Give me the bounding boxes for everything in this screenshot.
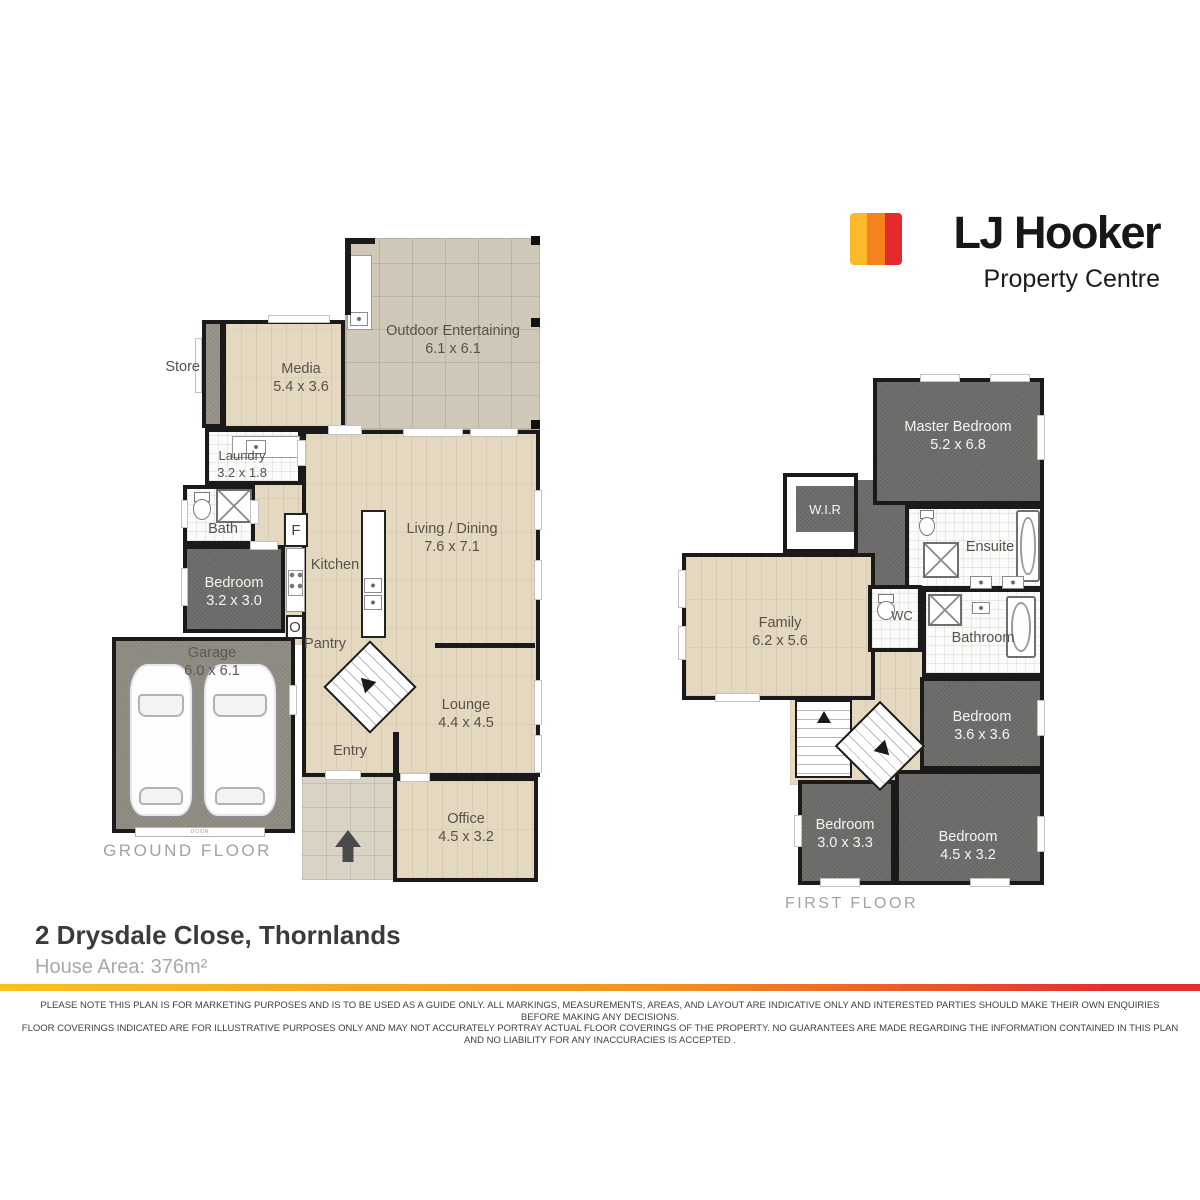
property-address: 2 Drysdale Close, Thornlands <box>35 920 401 951</box>
label-line: GROUND FLOOR <box>100 840 275 861</box>
sink-icon <box>1002 576 1024 589</box>
post-icon <box>531 236 540 245</box>
shower-icon <box>216 489 252 523</box>
first-floor-plan: Master Bedroom5.2 x 6.8W.I.REnsuiteFamil… <box>670 370 1050 915</box>
label-entry: Entry <box>300 742 400 760</box>
window <box>325 770 361 780</box>
window <box>289 685 297 715</box>
label-line: Media <box>201 360 401 378</box>
label-line: Bedroom <box>184 574 284 592</box>
label-bedroom-36: Bedroom3.6 x 3.6 <box>882 708 1082 744</box>
box-icon: F <box>284 513 308 547</box>
window <box>970 878 1010 887</box>
window <box>470 428 518 437</box>
window <box>268 315 330 323</box>
label-bedroom-45: Bedroom4.5 x 3.2 <box>868 828 1068 864</box>
label-line: 4.5 x 3.2 <box>366 828 566 846</box>
label-lounge: Lounge4.4 x 4.5 <box>366 696 566 732</box>
window <box>534 735 542 773</box>
window <box>400 773 430 782</box>
sink-icon <box>972 602 990 614</box>
window <box>990 374 1030 382</box>
floor-title: FIRST FLOOR <box>774 894 929 914</box>
label-office: Office4.5 x 3.2 <box>366 810 566 846</box>
label-line: 4.4 x 4.5 <box>366 714 566 732</box>
label-line: Garage <box>112 644 312 662</box>
toilet-icon <box>918 510 936 536</box>
label-line: 5.2 x 6.8 <box>858 436 1058 454</box>
label-line: Pantry <box>285 635 365 653</box>
label-bathroom: Bathroom <box>933 629 1033 647</box>
label-line: Entry <box>300 742 400 760</box>
lj-hooker-logo-mark <box>850 213 902 265</box>
sink-icon <box>364 595 382 610</box>
label-line: 7.6 x 7.1 <box>352 538 552 556</box>
label-line: 3.6 x 3.6 <box>882 726 1082 744</box>
label-wir: W.I.R <box>775 501 875 518</box>
label-line: Family <box>680 614 880 632</box>
label-line: Laundry <box>192 447 292 464</box>
label-kitchen: Kitchen <box>295 556 375 574</box>
label-line: Bathroom <box>933 629 1033 647</box>
label-garage: Garage6.0 x 6.1 <box>112 644 312 680</box>
toilet-icon <box>192 492 212 520</box>
car-icon <box>202 662 278 818</box>
sink-icon <box>970 576 992 589</box>
label-line: Office <box>366 810 566 828</box>
label-bedroom-ground: Bedroom3.2 x 3.0 <box>184 574 284 610</box>
bigarrow-icon <box>334 830 362 870</box>
label-line: 5.4 x 3.6 <box>201 378 401 396</box>
label-line: 3.2 x 3.0 <box>184 592 284 610</box>
label-line: Bedroom <box>882 708 1082 726</box>
label-line: Master Bedroom <box>858 418 1058 436</box>
lj-hooker-logo: LJ Hooker Property Centre <box>848 205 1160 297</box>
wall-segment <box>435 643 535 648</box>
window <box>534 560 542 600</box>
doorstrip-icon: DOOR <box>135 827 265 837</box>
label-line: Ensuite <box>940 538 1040 556</box>
label-outdoor: Outdoor Entertaining6.1 x 6.1 <box>353 322 553 358</box>
label-pantry: Pantry <box>285 635 365 653</box>
floorplan-flyer: LJ Hooker Property Centre FODOORStoreMed… <box>0 0 1200 1200</box>
wall-segment <box>345 238 351 315</box>
brand-subtitle: Property Centre <box>900 265 1160 293</box>
window <box>250 541 278 550</box>
label-master: Master Bedroom5.2 x 6.8 <box>858 418 1058 454</box>
disclaimer-line-2: FLOOR COVERINGS INDICATED ARE FOR ILLUST… <box>20 1023 1180 1046</box>
window <box>715 693 760 702</box>
label-line: 6.2 x 5.6 <box>680 632 880 650</box>
window <box>328 425 362 435</box>
logo-stripe-yellow <box>850 213 867 265</box>
wall-segment <box>345 238 375 244</box>
label-store: Store <box>120 358 200 376</box>
label-line: Living / Dining <box>352 520 552 538</box>
label-line: 6.1 x 6.1 <box>353 340 553 358</box>
bathtub-icon <box>1006 596 1036 658</box>
window <box>678 570 686 608</box>
disclaimer-line-1: PLEASE NOTE THIS PLAN IS FOR MARKETING P… <box>20 1000 1180 1023</box>
window <box>920 374 960 382</box>
floor-title: GROUND FLOOR <box>100 840 275 861</box>
label-line: 4.5 x 3.2 <box>868 846 1068 864</box>
label-media: Media5.4 x 3.6 <box>201 360 401 396</box>
sink-icon <box>364 578 382 593</box>
label-ensuite: Ensuite <box>940 538 1040 556</box>
label-line: 3.2 x 1.8 <box>192 464 292 481</box>
label-line: Kitchen <box>295 556 375 574</box>
gradient-bar <box>0 984 1200 991</box>
label-line: W.I.R <box>775 501 875 518</box>
label-bath: Bath <box>173 520 273 538</box>
label-wc: WC <box>875 607 929 624</box>
car-icon <box>128 662 194 818</box>
label-line: Bath <box>173 520 273 538</box>
label-line: 6.0 x 6.1 <box>112 662 312 680</box>
house-area: House Area: 376m² <box>35 956 207 979</box>
label-laundry: Laundry3.2 x 1.8 <box>192 447 292 481</box>
label-line: Bedroom <box>868 828 1068 846</box>
label-line: Lounge <box>366 696 566 714</box>
logo-stripe-orange <box>867 213 884 265</box>
label-line: Store <box>120 358 200 376</box>
label-line: FIRST FLOOR <box>774 894 929 914</box>
disclaimer: PLEASE NOTE THIS PLAN IS FOR MARKETING P… <box>20 1000 1180 1046</box>
label-living-dining: Living / Dining7.6 x 7.1 <box>352 520 552 556</box>
label-line: WC <box>875 607 929 624</box>
window <box>403 428 463 437</box>
shower-icon <box>928 594 962 626</box>
ground-floor-plan: FODOORStoreMedia5.4 x 3.6Outdoor Enterta… <box>100 230 570 910</box>
brand-name: LJ Hooker <box>900 205 1160 261</box>
label-line: Outdoor Entertaining <box>353 322 553 340</box>
label-family: Family6.2 x 5.6 <box>680 614 880 650</box>
window <box>297 440 306 466</box>
window <box>820 878 860 887</box>
post-icon <box>531 420 540 429</box>
